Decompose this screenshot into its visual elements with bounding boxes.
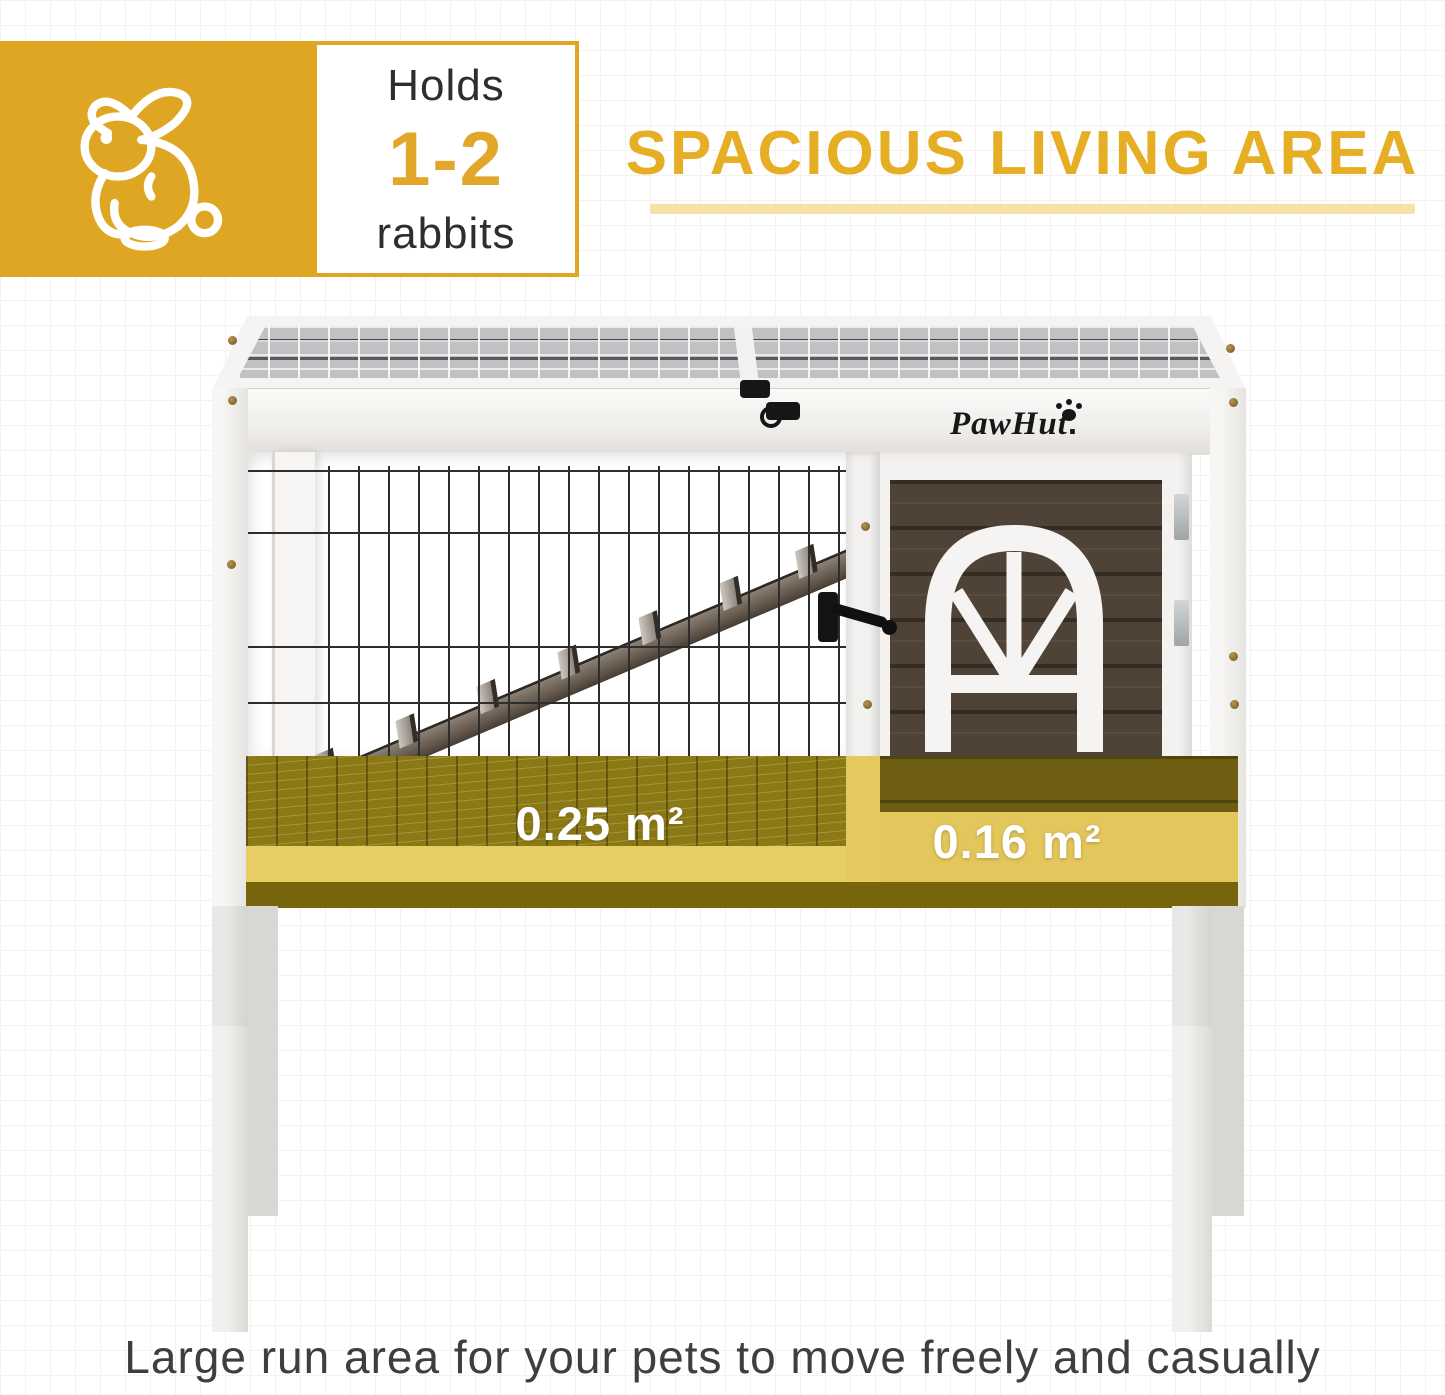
- screw: [861, 522, 870, 531]
- divider-highlight: [846, 756, 880, 882]
- run-inner-post: [272, 452, 315, 756]
- capacity-badge: Holds 1-2 rabbits: [313, 41, 579, 277]
- roof-hasp-latch: [740, 378, 810, 428]
- capacity-unit-label: rabbits: [376, 209, 515, 259]
- rabbit-icon: [58, 69, 258, 254]
- capacity-badge-icon-box: [0, 41, 313, 277]
- screw: [227, 560, 236, 569]
- house-highlight: [880, 756, 1238, 812]
- holds-label: Holds: [387, 61, 505, 111]
- screw: [1226, 344, 1235, 353]
- brand-logo: PawHut.: [950, 404, 1110, 450]
- screw: [1229, 652, 1238, 661]
- screw: [1229, 398, 1238, 407]
- tray-highlight: [246, 882, 1238, 908]
- screw: [228, 336, 237, 345]
- wire: [248, 470, 848, 472]
- wire: [248, 532, 848, 534]
- hutch-left-post: [212, 388, 248, 908]
- capacity-value: 1-2: [388, 122, 504, 198]
- brand-logo-text: PawHut: [950, 406, 1068, 442]
- door-latch: [818, 584, 898, 654]
- hutch-leg-back-right: [1212, 906, 1244, 1216]
- door-window-frame: [922, 520, 1106, 758]
- run-wire-mesh: [312, 466, 848, 756]
- latch-handle: [830, 602, 889, 629]
- page-title: SPACIOUS LIVING AREA: [600, 118, 1445, 189]
- paw-print-icon: [1054, 396, 1084, 422]
- run-rail-highlight: [246, 846, 846, 882]
- hutch-leg-front-right: [1172, 906, 1212, 1332]
- wire: [248, 646, 848, 648]
- screw: [1230, 700, 1239, 709]
- door-hinge: [1174, 494, 1189, 540]
- caption-text: Large run area for your pets to move fre…: [0, 1330, 1445, 1384]
- hutch-leg-front-left: [212, 906, 248, 1332]
- title-underline: [650, 204, 1415, 214]
- hasp-ring: [760, 406, 782, 428]
- house-area-value: 0.16 m²: [877, 814, 1157, 869]
- screw: [228, 396, 237, 405]
- wire: [248, 702, 848, 704]
- area-highlight-overlay: 0.25 m² 0.16 m²: [246, 756, 1238, 908]
- door-hinge: [1174, 600, 1189, 646]
- hasp-plate: [740, 380, 770, 398]
- product-infographic: Holds 1-2 rabbits SPACIOUS LIVING AREA P…: [0, 0, 1445, 1395]
- latch-plate: [818, 592, 838, 642]
- latch-knob: [882, 620, 897, 635]
- hutch-roof-wire-mesh: [238, 326, 1220, 378]
- run-area-value: 0.25 m²: [460, 796, 740, 851]
- hutch-leg-back-left: [248, 906, 278, 1216]
- screw: [863, 700, 872, 709]
